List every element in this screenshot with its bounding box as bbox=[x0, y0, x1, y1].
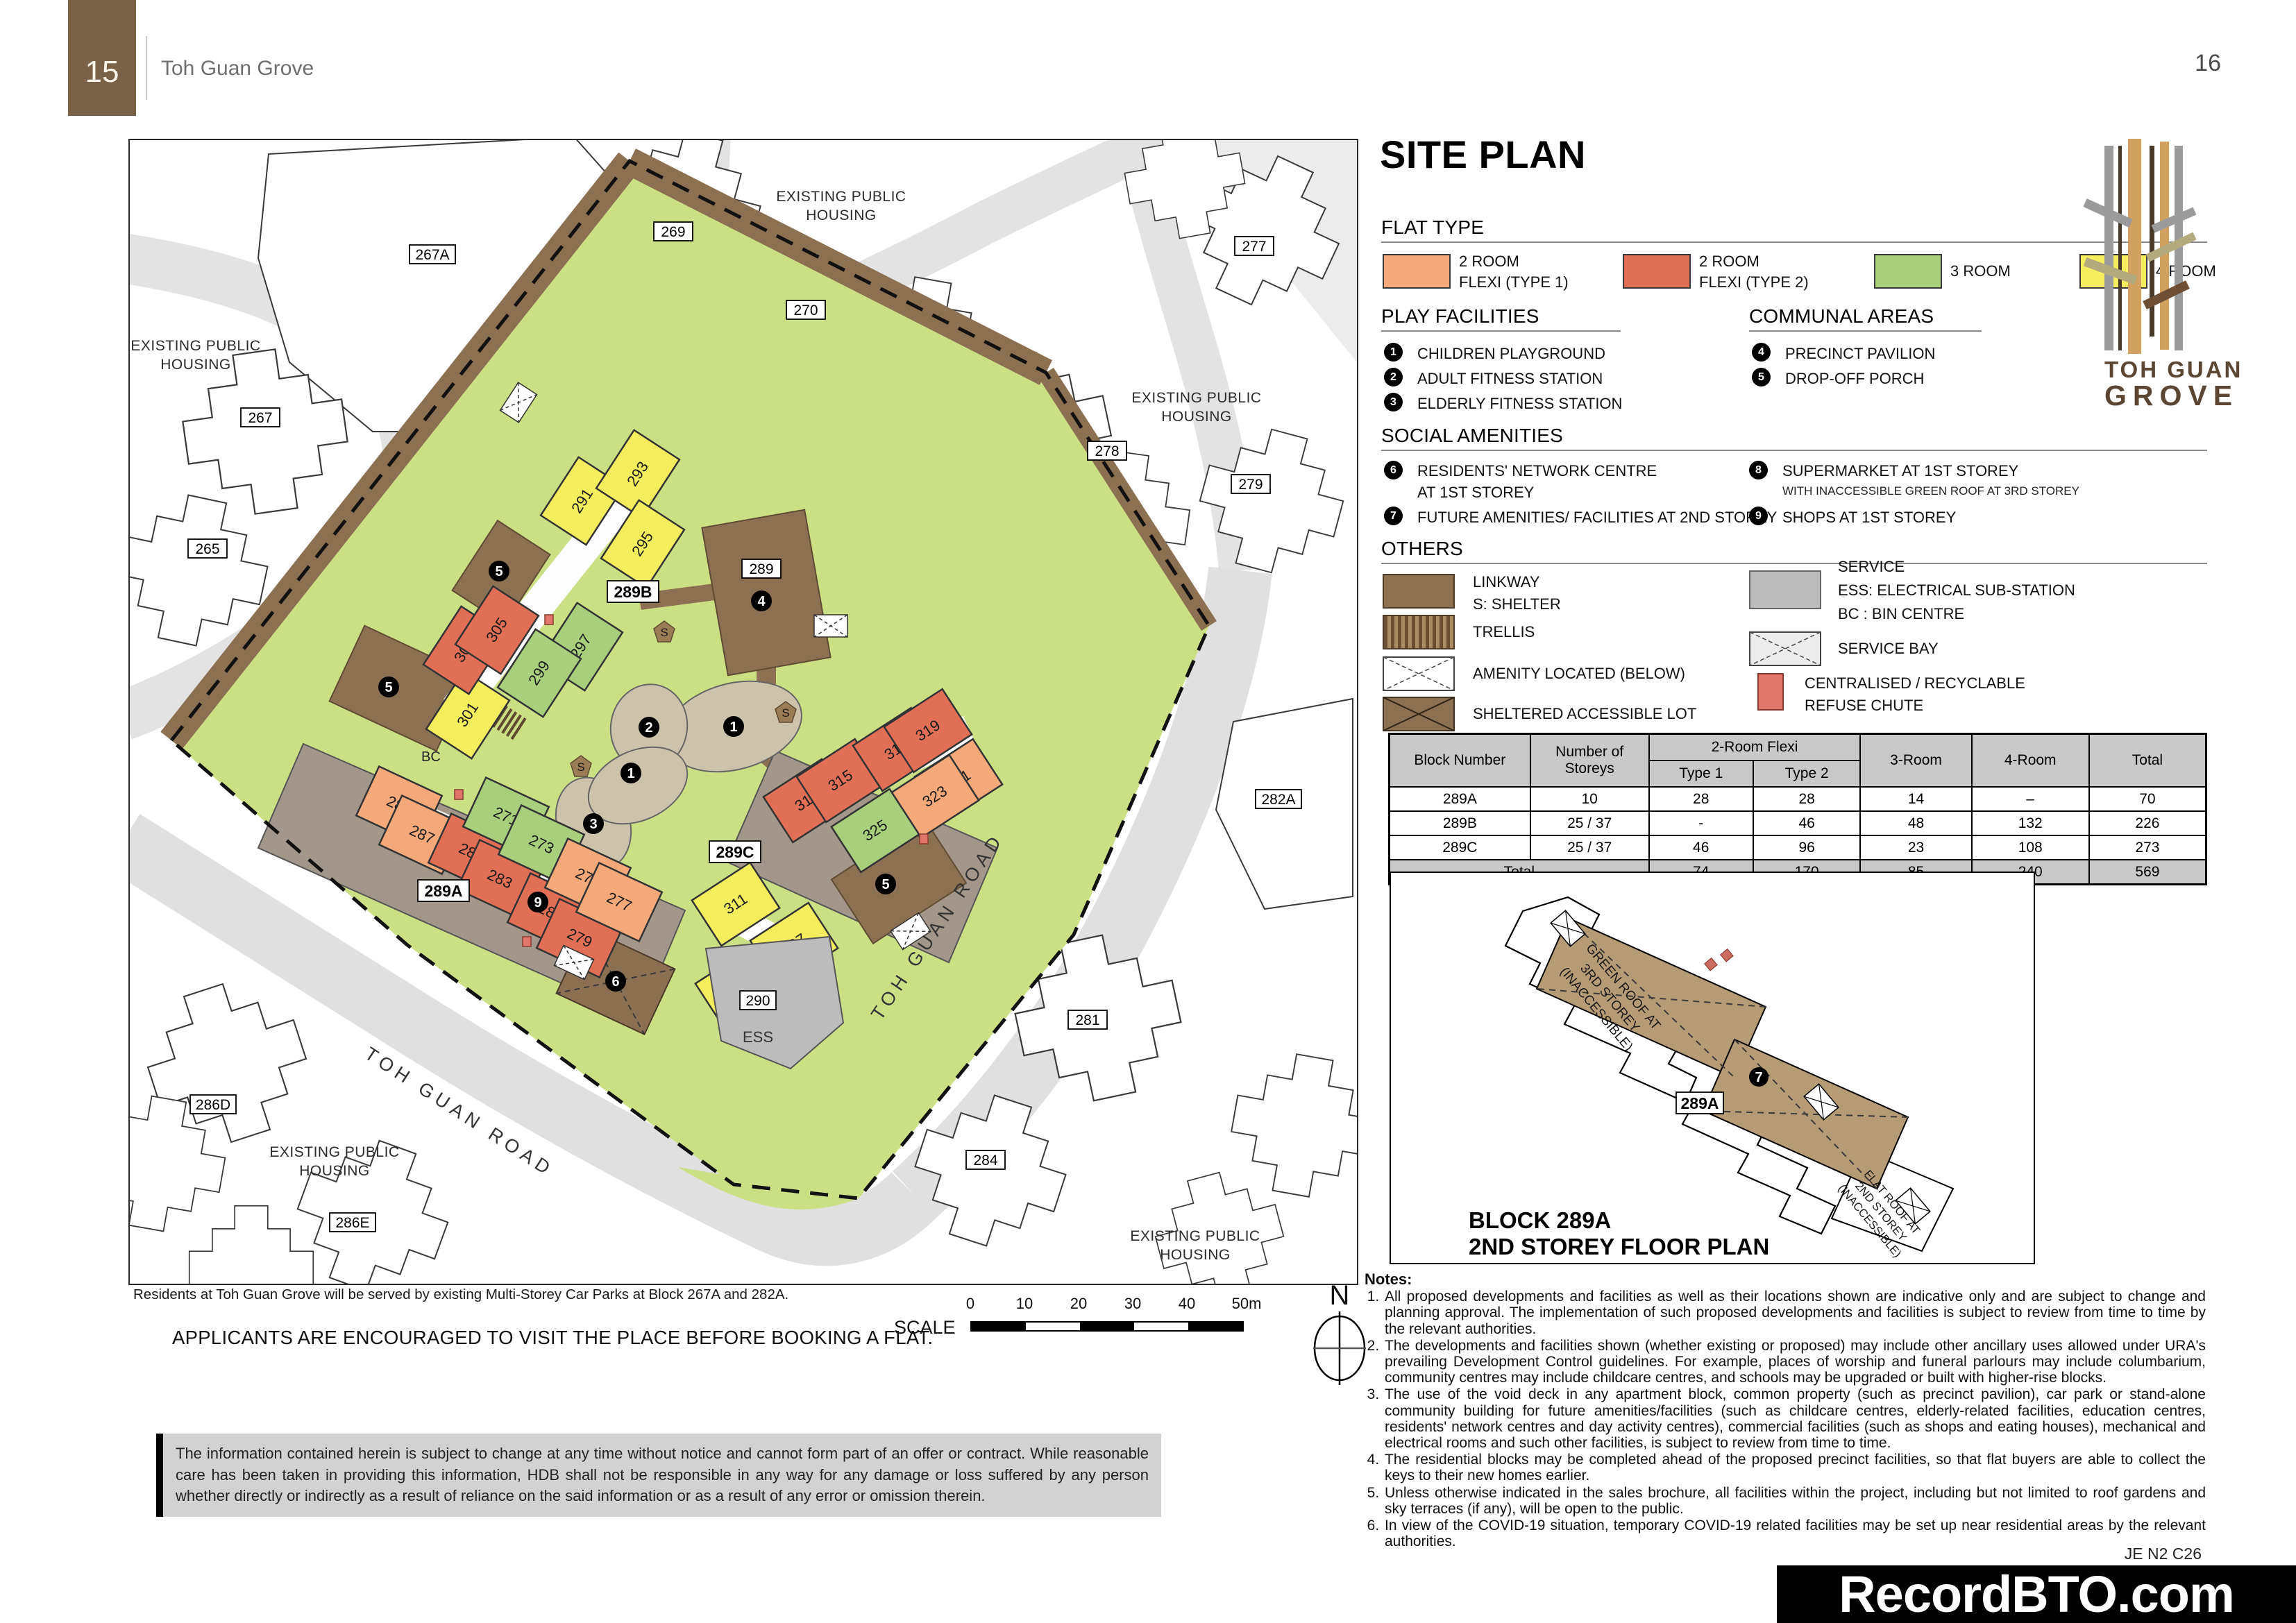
amenity-below-label: AMENITY LOCATED (BELOW) bbox=[1473, 665, 1685, 683]
marker-9: 9 bbox=[1749, 507, 1768, 525]
block-289a-floorplan: GREEN ROOF AT 3RD STOREY (INACCESSIBLE) … bbox=[1390, 872, 2035, 1264]
floorplan-marker-7: 7 bbox=[1749, 1067, 1769, 1087]
table-row: 289C25 / 37469623108273 bbox=[1390, 835, 2206, 860]
svg-text:267: 267 bbox=[248, 410, 272, 426]
watermark-banner: RecordBTO.com bbox=[1777, 1565, 2296, 1623]
svg-text:289A: 289A bbox=[1681, 1094, 1719, 1112]
ess-label: ESS bbox=[743, 1028, 773, 1046]
svg-text:289A: 289A bbox=[425, 882, 463, 900]
svg-text:1: 1 bbox=[729, 720, 737, 735]
svg-text:289C: 289C bbox=[716, 843, 754, 861]
scale-tick-labels: 0 10 20 30 40 50m bbox=[956, 1295, 1276, 1313]
table-row: 289A10282814–70 bbox=[1390, 787, 2206, 811]
marker-4: 4 bbox=[1752, 343, 1771, 362]
marker-7: 7 bbox=[1384, 507, 1403, 525]
marker-3: 3 bbox=[1384, 393, 1403, 411]
svg-text:286E: 286E bbox=[335, 1215, 369, 1231]
col-type1: Type 1 bbox=[1649, 760, 1753, 787]
brochure-page: 15 Toh Guan Grove 16 bbox=[0, 0, 2296, 1623]
note-item: Unless otherwise indicated in the sales … bbox=[1383, 1485, 2206, 1517]
logo-bamboo-icon bbox=[2085, 139, 2195, 354]
unit-count-table: Block Number Number ofStoreys 2-Room Fle… bbox=[1388, 733, 2207, 885]
flat-type-1-swatch bbox=[1383, 254, 1451, 289]
flat-type-2-label: 2 ROOM bbox=[1699, 253, 1759, 271]
flat-type-2-swatch bbox=[1623, 254, 1691, 289]
svg-text:267A: 267A bbox=[415, 247, 449, 263]
svg-text:277: 277 bbox=[1242, 239, 1266, 255]
service-swatch bbox=[1749, 570, 1821, 609]
sheltered-lot-label: SHELTERED ACCESSIBLE LOT bbox=[1473, 705, 1696, 723]
visit-notice: APPLICANTS ARE ENCOURAGED TO VISIT THE P… bbox=[172, 1327, 933, 1349]
social-item-6: RESIDENTS' NETWORK CENTRE bbox=[1417, 462, 1657, 480]
carpark-caption: Residents at Toh Guan Grove will be serv… bbox=[133, 1286, 788, 1303]
site-plan-map: 291 293 295 297 299 301 303 305 313 315 … bbox=[128, 139, 1358, 1285]
svg-text:EXISTING PUBLIC: EXISTING PUBLIC bbox=[776, 189, 906, 205]
marker-5: 5 bbox=[1752, 368, 1771, 386]
scale-label: SCALE bbox=[894, 1317, 956, 1339]
svg-text:HOUSING: HOUSING bbox=[1160, 1247, 1231, 1263]
logo-text-line2: GROVE bbox=[2104, 380, 2238, 409]
scale-tick: 20 bbox=[1058, 1295, 1099, 1313]
flat-type-heading: FLAT TYPE bbox=[1381, 216, 1484, 239]
notes-title: Notes: bbox=[1365, 1271, 2206, 1287]
svg-text:289B: 289B bbox=[614, 583, 652, 601]
svg-text:HOUSING: HOUSING bbox=[160, 357, 231, 373]
note-item: All proposed developments and facilities… bbox=[1383, 1289, 2206, 1337]
svg-text:3: 3 bbox=[589, 817, 597, 832]
col-type2: Type 2 bbox=[1753, 760, 1861, 787]
shelter-label: S: SHELTER bbox=[1473, 595, 1561, 613]
floorplan-caption-2: 2ND STOREY FLOOR PLAN bbox=[1469, 1234, 1769, 1259]
header-divider bbox=[146, 36, 147, 100]
project-name: Toh Guan Grove bbox=[161, 57, 314, 80]
toh-guan-grove-logo: TOH GUAN GROVE bbox=[2084, 133, 2292, 409]
svg-text:4: 4 bbox=[757, 594, 766, 609]
refuse-chute-label2: REFUSE CHUTE bbox=[1805, 697, 1923, 715]
bin-centre-label: BC bbox=[421, 749, 441, 765]
page-tab-number: 15 bbox=[68, 55, 136, 90]
social-item-7: FUTURE AMENITIES/ FACILITIES AT 2ND STOR… bbox=[1417, 509, 1777, 527]
rule bbox=[1381, 330, 1621, 332]
social-item-8b: WITH INACCESSIBLE GREEN ROOF AT 3RD STOR… bbox=[1782, 484, 2079, 498]
svg-text:5: 5 bbox=[881, 877, 889, 892]
room3-label: 3 ROOM bbox=[1950, 262, 2011, 280]
communal-areas-heading: COMMUNAL AREAS bbox=[1749, 305, 1934, 328]
svg-text:EXISTING PUBLIC: EXISTING PUBLIC bbox=[269, 1144, 399, 1160]
notes-section: Notes: All proposed developments and fac… bbox=[1365, 1271, 2206, 1550]
scale-tick: 0 bbox=[949, 1295, 991, 1313]
svg-text:5: 5 bbox=[385, 680, 392, 695]
svg-text:278: 278 bbox=[1095, 443, 1119, 459]
svg-text:286D: 286D bbox=[196, 1097, 230, 1113]
svg-text:HOUSING: HOUSING bbox=[806, 207, 877, 223]
col-3room: 3-Room bbox=[1860, 734, 1971, 788]
map-canvas: 291 293 295 297 299 301 303 305 313 315 … bbox=[130, 140, 1357, 1284]
svg-text:EXISTING PUBLIC: EXISTING PUBLIC bbox=[1131, 390, 1261, 406]
svg-text:EXISTING PUBLIC: EXISTING PUBLIC bbox=[130, 338, 260, 354]
flat-type-1-label: 2 ROOM bbox=[1459, 253, 1519, 271]
marker-8: 8 bbox=[1749, 461, 1768, 479]
svg-text:289: 289 bbox=[749, 561, 773, 577]
scale-tick: 10 bbox=[1004, 1295, 1045, 1313]
svg-text:9: 9 bbox=[534, 895, 541, 910]
svg-text:279: 279 bbox=[1238, 477, 1263, 493]
bin-centre-legend-label: BC : BIN CENTRE bbox=[1838, 605, 1964, 623]
linkway-label: LINKWAY bbox=[1473, 573, 1540, 591]
scale-tick: 50m bbox=[1226, 1295, 1267, 1313]
svg-text:S: S bbox=[660, 626, 668, 639]
svg-text:290: 290 bbox=[745, 993, 770, 1009]
svg-text:269: 269 bbox=[661, 224, 685, 240]
svg-text:1: 1 bbox=[627, 766, 634, 781]
watermark-text: RecordBTO.com bbox=[1839, 1565, 2234, 1623]
col-block: Block Number bbox=[1390, 734, 1530, 788]
marker-1: 1 bbox=[1384, 343, 1403, 362]
social-item-6b: AT 1ST STOREY bbox=[1417, 484, 1534, 502]
room3-swatch bbox=[1874, 254, 1942, 289]
social-item-9: SHOPS AT 1ST STOREY bbox=[1782, 509, 1956, 527]
sheltered-lot-swatch bbox=[1383, 697, 1455, 735]
play-item-3: ELDERLY FITNESS STATION bbox=[1417, 395, 1622, 413]
amenity-below-swatch bbox=[1383, 656, 1455, 695]
svg-text:284: 284 bbox=[973, 1153, 997, 1169]
social-item-8: SUPERMARKET AT 1ST STOREY bbox=[1782, 462, 2018, 480]
table-row: 289B25 / 37-4648132226 bbox=[1390, 811, 2206, 835]
service-bay-label: SERVICE BAY bbox=[1838, 640, 1939, 658]
north-label: N bbox=[1330, 1282, 1350, 1311]
others-heading: OTHERS bbox=[1381, 538, 1463, 560]
play-item-2: ADULT FITNESS STATION bbox=[1417, 370, 1603, 388]
social-amenities-heading: SOCIAL AMENITIES bbox=[1381, 425, 1563, 447]
notes-list: All proposed developments and facilities… bbox=[1365, 1289, 2206, 1549]
rule bbox=[1381, 563, 2207, 564]
flat-type-1-label2: FLEXI (TYPE 1) bbox=[1459, 273, 1569, 291]
marker-2: 2 bbox=[1384, 368, 1403, 386]
scale-bar bbox=[970, 1321, 1244, 1332]
refuse-chute-swatch bbox=[1757, 673, 1784, 711]
marker-6: 6 bbox=[1384, 461, 1403, 479]
svg-text:S: S bbox=[782, 706, 789, 720]
service-bay-swatch bbox=[1749, 631, 1821, 670]
svg-text:2: 2 bbox=[645, 720, 652, 736]
site-plan-title: SITE PLAN bbox=[1380, 132, 1586, 177]
rule bbox=[1381, 450, 2207, 451]
note-item: The residential blocks may be completed … bbox=[1383, 1452, 2206, 1484]
refuse-chute-label: CENTRALISED / RECYCLABLE bbox=[1805, 674, 2025, 692]
linkway-swatch bbox=[1383, 574, 1455, 609]
svg-text:HOUSING: HOUSING bbox=[1161, 409, 1232, 425]
flat-type-2-label2: FLEXI (TYPE 2) bbox=[1699, 273, 1809, 291]
communal-item-5: DROP-OFF PORCH bbox=[1785, 370, 1924, 388]
svg-text:5: 5 bbox=[495, 564, 503, 579]
col-2room: 2-Room Flexi bbox=[1649, 734, 1861, 761]
svg-text:EXISTING PUBLIC: EXISTING PUBLIC bbox=[1130, 1228, 1260, 1244]
trellis-label: TRELLIS bbox=[1473, 623, 1535, 641]
scale-tick: 40 bbox=[1166, 1295, 1208, 1313]
svg-text:S: S bbox=[577, 760, 584, 774]
col-total: Total bbox=[2089, 734, 2206, 788]
note-item: The use of the void deck in any apartmen… bbox=[1383, 1386, 2206, 1451]
logo-text-line1: TOH GUAN bbox=[2104, 357, 2243, 382]
reference-code: JE N2 C26 bbox=[2013, 1545, 2202, 1563]
floorplan-caption-1: BLOCK 289A bbox=[1469, 1207, 1611, 1233]
svg-text:6: 6 bbox=[611, 974, 619, 989]
ess-label: ESS: ELECTRICAL SUB-STATION bbox=[1838, 581, 2075, 600]
col-storeys: Number ofStoreys bbox=[1530, 734, 1649, 788]
svg-text:HOUSING: HOUSING bbox=[299, 1163, 370, 1179]
scale-tick: 30 bbox=[1112, 1295, 1154, 1313]
page-tab: 15 bbox=[68, 0, 136, 116]
svg-text:7: 7 bbox=[1755, 1070, 1762, 1085]
rule bbox=[1749, 330, 1982, 332]
disclaimer: The information contained herein is subj… bbox=[156, 1434, 1161, 1517]
play-facilities-heading: PLAY FACILITIES bbox=[1381, 305, 1539, 328]
svg-text:281: 281 bbox=[1075, 1012, 1099, 1028]
trellis-swatch bbox=[1383, 615, 1455, 649]
page-number: 16 bbox=[2166, 50, 2221, 77]
communal-item-4: PRECINCT PAVILION bbox=[1785, 345, 1935, 363]
svg-text:282A: 282A bbox=[1261, 792, 1295, 808]
col-4room: 4-Room bbox=[1972, 734, 2089, 788]
play-item-1: CHILDREN PLAYGROUND bbox=[1417, 345, 1605, 363]
note-item: The developments and facilities shown (w… bbox=[1383, 1338, 2206, 1386]
floorplan-block-label: 289A bbox=[1676, 1092, 1723, 1114]
service-label: SERVICE bbox=[1838, 558, 1905, 576]
svg-text:270: 270 bbox=[793, 303, 818, 318]
svg-text:265: 265 bbox=[195, 541, 219, 557]
